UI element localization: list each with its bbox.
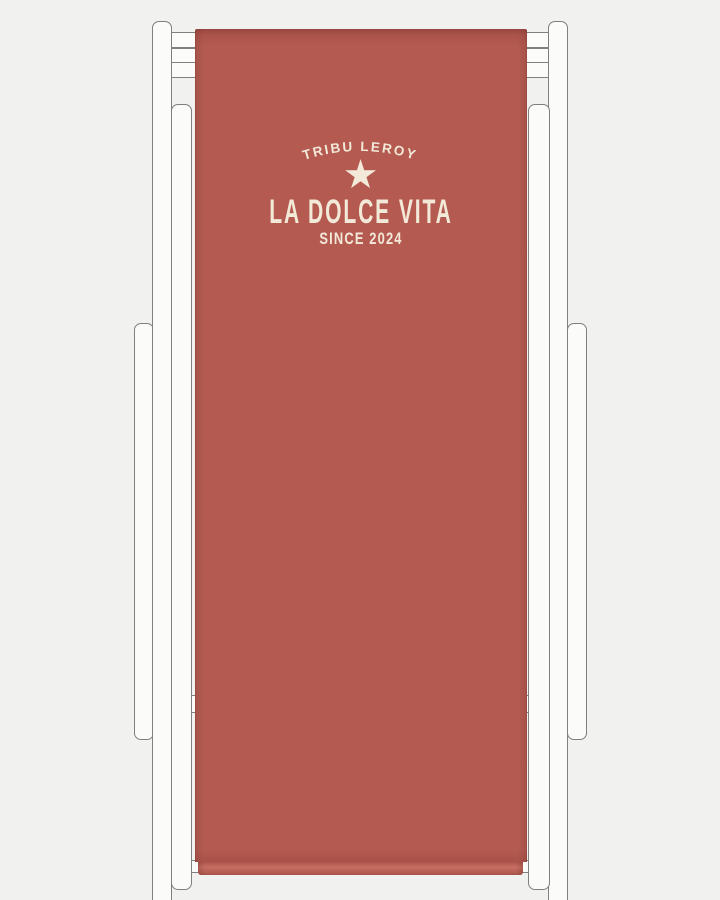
deckchair-side-leg-right: [567, 323, 587, 740]
deckchair-outer-rail-left: [152, 21, 172, 900]
deckchair-outer-rail-right: [548, 21, 568, 900]
print-title: LA DOLCE VITA: [258, 195, 464, 229]
deckchair-inner-rail-right: [528, 104, 550, 890]
deckchair-mockup: TRIBU LEROY ★ LA DOLCE VITA SINCE 2024: [0, 0, 720, 900]
deckchair-canvas-panel: TRIBU LEROY ★ LA DOLCE VITA SINCE 2024: [195, 29, 527, 862]
deckchair-inner-rail-left: [171, 104, 193, 890]
print-subtitle: SINCE 2024: [234, 230, 486, 247]
deckchair-side-leg-left: [134, 323, 154, 740]
deckchair-canvas-hem: [198, 862, 523, 875]
star-icon: ★: [195, 155, 527, 195]
